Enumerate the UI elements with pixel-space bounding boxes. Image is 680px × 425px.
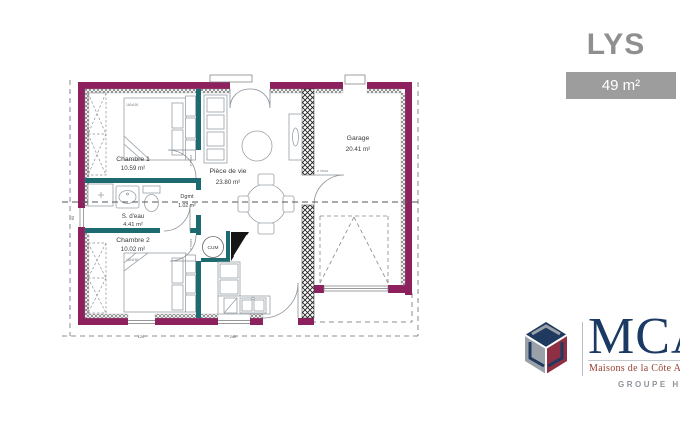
room-area-chambre2: 10.02 m² [121, 246, 145, 253]
room-label-chambre1: Chambre 1 [116, 156, 150, 163]
room-area-garage: 20.41 m² [346, 146, 370, 153]
bed-size-chambre2: 140x190 [126, 258, 138, 262]
logo-divider [582, 322, 583, 376]
brand-tagline: Maisons de la Côte Atlantique [589, 363, 680, 374]
surface-badge: 49 m² [566, 72, 676, 99]
dim-window-chambre2: 120 [138, 334, 145, 339]
room-area-piece-de-vie: 23.80 m² [216, 179, 240, 186]
dim-window-kitchen: 240 [230, 334, 237, 339]
room-label-garage: Garage [347, 135, 370, 142]
garage-door-swing [320, 216, 388, 283]
page-title: LYS [556, 28, 676, 62]
room-area-dgmt: 1.02 m² [178, 203, 196, 209]
bed-size-chambre1: 140x190 [126, 103, 138, 107]
door-ref-chambre2: P 75004 [189, 239, 193, 250]
wardrobe-chambre1 [88, 93, 106, 175]
room-label-sdeau: S. d'eau [122, 213, 145, 220]
water-heater-label: CUM [208, 245, 219, 251]
page: Chambre 1 10.59 m² S. d'eau 4.41 m² Cham… [0, 0, 680, 425]
logo-rule [588, 360, 680, 361]
room-area-chambre1: 10.59 m² [121, 165, 145, 172]
wardrobe-chambre2 [88, 243, 106, 313]
brand-name: MCA [588, 308, 680, 365]
garage-partition-wall [302, 89, 314, 318]
room-label-piece-de-vie: Pièce de vie [209, 168, 246, 175]
room-area-sdeau: 4.41 m² [123, 222, 143, 228]
room-label-chambre2: Chambre 2 [116, 237, 150, 244]
door-ref-chambre1: P 75004 [189, 155, 193, 166]
room-label-dgmt: Dgmt [180, 194, 194, 200]
mca-cube-icon [520, 320, 572, 376]
brand-group: GROUPE HEXAOM [618, 380, 680, 389]
dim-window-sdeau: 60 [70, 215, 75, 220]
brand-logo: MCA Maisons de la Côte Atlantique GROUPE… [518, 316, 680, 391]
door-ref-garage: P 75004 [317, 169, 328, 173]
